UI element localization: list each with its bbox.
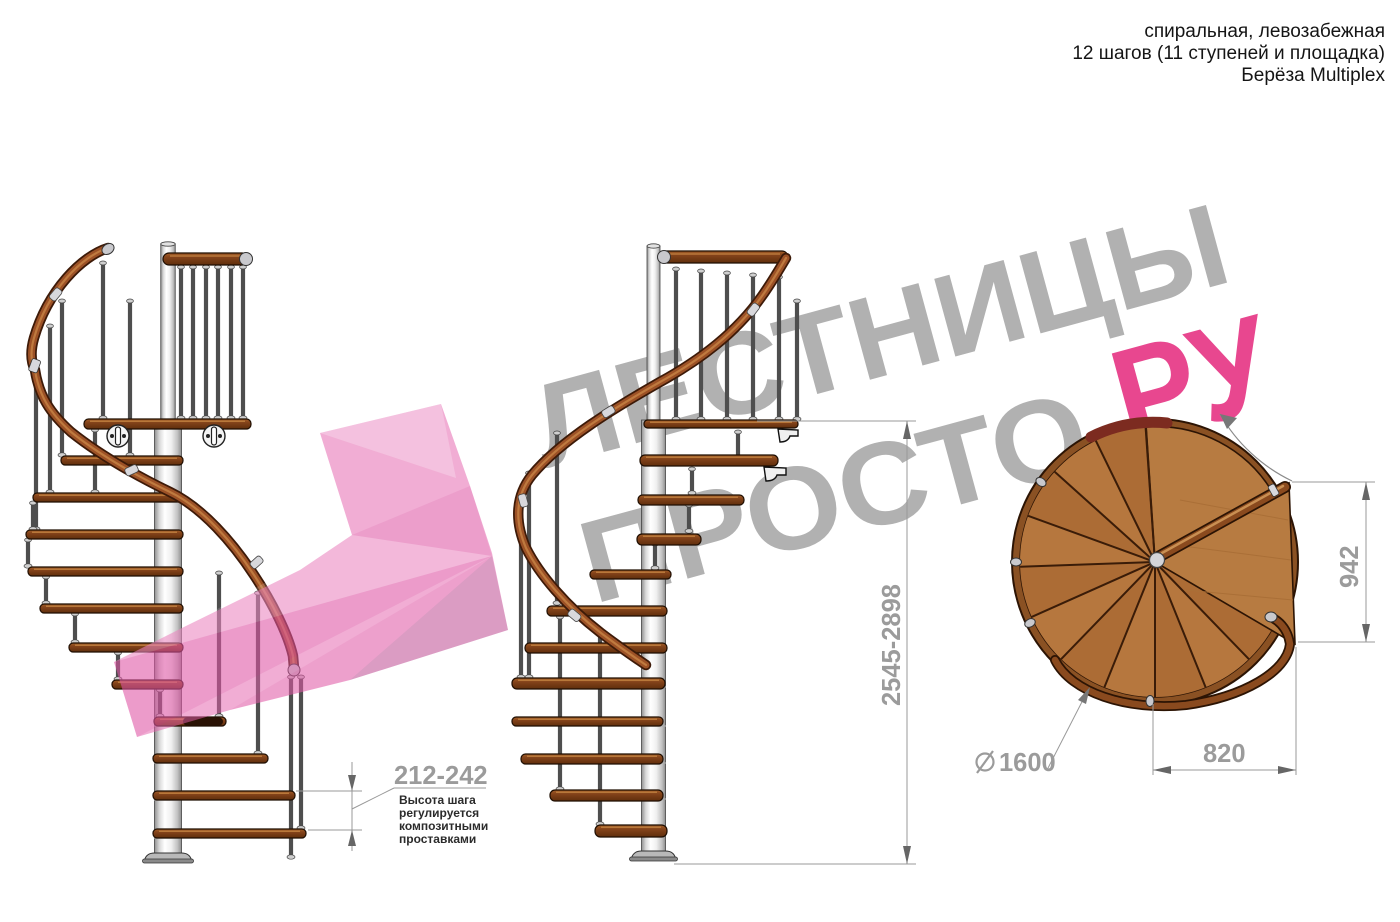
svg-text:12 шагов (11 ступеней и площад: 12 шагов (11 ступеней и площадка) <box>1072 43 1385 64</box>
svg-text:Высота шагарегулируетсякомпози: Высота шагарегулируетсякомпозитнымипрост… <box>399 793 488 846</box>
svg-text:спиральная, левозабежная: спиральная, левозабежная <box>1144 21 1385 42</box>
svg-text:942: 942 <box>1336 545 1364 588</box>
svg-text:820: 820 <box>1203 740 1246 768</box>
svg-text:1600: 1600 <box>999 749 1056 777</box>
svg-text:Берёза Multiplex: Берёза Multiplex <box>1241 65 1385 86</box>
svg-text:2545-2898: 2545-2898 <box>878 584 906 706</box>
svg-text:212-242: 212-242 <box>394 762 488 790</box>
